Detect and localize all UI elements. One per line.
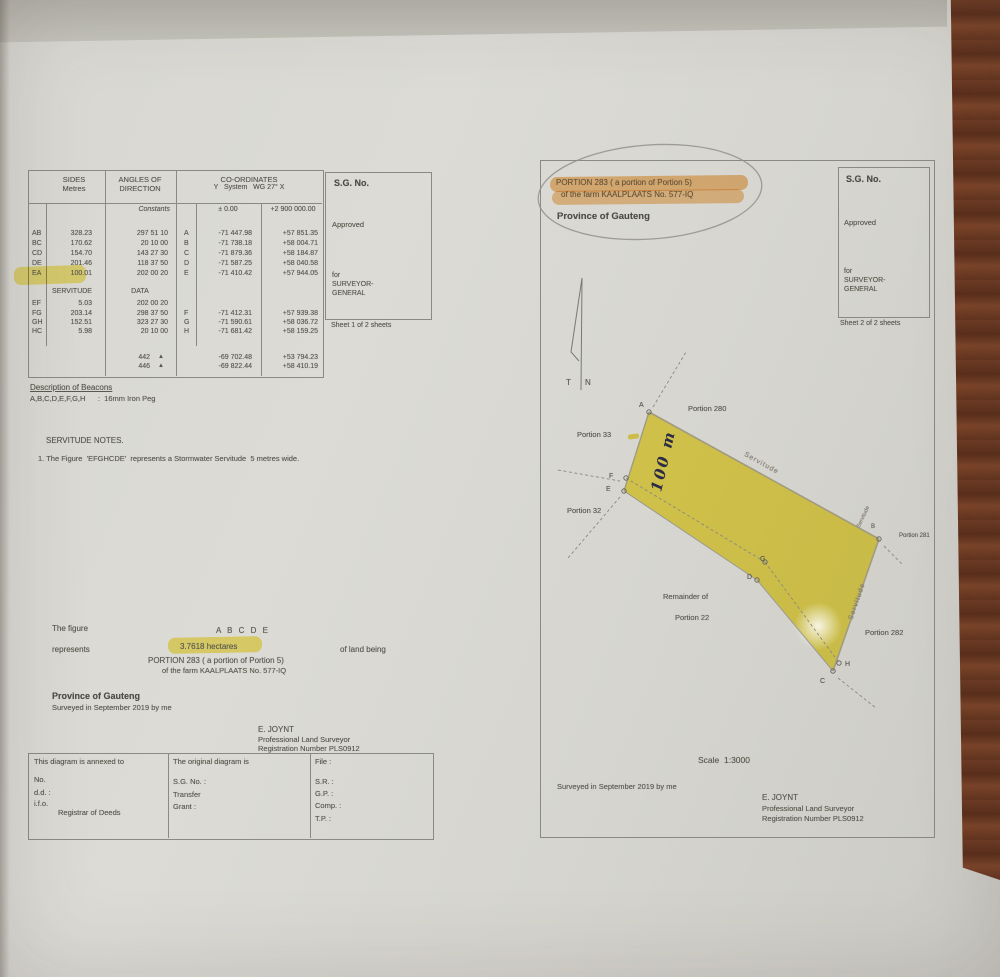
side-pair: FG [32, 310, 42, 317]
sheet-count: Sheet 2 of 2 sheets [840, 320, 900, 327]
constant-x: +2 900 000.00 [271, 206, 316, 213]
beacon-letter: B [184, 240, 189, 247]
sg-no-title: S.G. No. [846, 174, 881, 184]
surveyor-general-label-2: GENERAL [844, 286, 877, 293]
table-rule [310, 753, 311, 838]
table-header-rule [28, 203, 322, 204]
photographed-survey-document: SIDES Metres ANGLES OF DIRECTION CO-ORDI… [0, 0, 1000, 977]
beacons-description: A,B,C,D,E,F,G,H : 16mm Iron Peg [30, 394, 155, 403]
background-surface [0, 0, 947, 46]
coord-y: -69 702.48 [219, 354, 252, 361]
coord-y: -69 822.44 [219, 363, 252, 370]
direction-angle: 202 00 20 [137, 300, 168, 307]
direction-angle: 323 27 30 [137, 319, 168, 326]
label-remainder-1: Remainder of [663, 592, 708, 601]
portion-title: PORTION 283 ( a portion of Portion 5) [148, 656, 284, 665]
col-header-angles-2: DIRECTION [119, 184, 160, 193]
label-remainder-2: Portion 22 [675, 613, 709, 622]
beacon-label-a: A [639, 402, 644, 409]
servitude-note-1: 1. The Figure 'EFGHCDE' represents a Sto… [38, 454, 299, 463]
coord-x: +58 159.25 [283, 328, 318, 335]
deeds-col1-title: This diagram is annexed to [34, 757, 124, 766]
deeds-col1-line: i.f.o. [34, 799, 48, 808]
coord-y: -71 587.25 [219, 260, 252, 267]
beacon-label-c: C [820, 678, 825, 685]
direction-angle: 297 51 10 [137, 230, 168, 237]
servitude-notes-heading: SERVITUDE NOTES. [46, 436, 124, 445]
table-rule [105, 170, 106, 376]
approved-label: Approved [332, 220, 364, 229]
side-pair: CD [32, 250, 42, 257]
table-rule [196, 203, 197, 346]
coord-x: +58 184.87 [283, 250, 318, 257]
surveyor-title: Professional Land Surveyor [258, 735, 350, 744]
coord-y: -71 879.36 [219, 250, 252, 257]
side-pair: EA [32, 270, 41, 277]
direction-angle: 20 10 00 [141, 240, 168, 247]
triangle-icon: ▲ [158, 354, 164, 360]
coord-x: +57 939.38 [283, 310, 318, 317]
coord-y: -71 410.42 [219, 270, 252, 277]
direction-angle: 298 37 50 [137, 310, 168, 317]
side-pair: GH [32, 319, 43, 326]
surveyor-registration: Registration Number PLS0912 [762, 814, 864, 823]
beacon-label-f: F [609, 473, 613, 480]
province-label: Province of Gauteng [52, 691, 140, 701]
beacon-label-e: E [606, 486, 611, 493]
sg-no-title: S.G. No. [334, 178, 369, 188]
for-label: for [332, 272, 340, 279]
side-pair: BC [32, 240, 42, 247]
side-length: 203.14 [71, 310, 92, 317]
side-pair: DE [32, 260, 42, 267]
direction-angle: 143 27 30 [137, 250, 168, 257]
surveyor-title: Professional Land Surveyor [762, 804, 854, 813]
deeds-col3-line: Comp. : [315, 801, 341, 810]
beacon-label-h: H [845, 661, 850, 668]
coord-y: -71 412.31 [219, 310, 252, 317]
coord-y: -71 447.98 [219, 230, 252, 237]
side-pair: HC [32, 328, 42, 335]
beacon-letter: C [184, 250, 189, 257]
coord-y: -71 681.42 [219, 328, 252, 335]
col-header-angles-1: ANGLES OF [119, 175, 162, 184]
deeds-col3-line: G.P. : [315, 789, 333, 798]
paper-edge-shadow [0, 0, 10, 977]
sheet-count: Sheet 1 of 2 sheets [331, 322, 391, 329]
surveyor-general-label-1: SURVEYOR- [332, 281, 374, 288]
coord-x: +58 036.72 [283, 319, 318, 326]
deeds-col2-line: Transfer [173, 790, 201, 799]
coord-x: +58 004.71 [283, 240, 318, 247]
coord-x: +58 040.58 [283, 260, 318, 267]
beacon-letter: A [184, 230, 189, 237]
direction-angle: 118 37 50 [137, 260, 168, 267]
province-label: Province of Gauteng [557, 211, 650, 222]
surveyed-line: Surveyed in September 2019 by me [557, 782, 677, 791]
coord-y: -71 738.18 [219, 240, 252, 247]
label-portion-280: Portion 280 [688, 404, 726, 413]
surveyor-general-label-1: SURVEYOR- [844, 277, 886, 284]
ref-beacon-number: 446 [138, 363, 150, 370]
triangle-icon: ▲ [158, 363, 164, 369]
beacon-letter: F [184, 310, 188, 317]
surveyor-name: E. JOYNT [762, 793, 798, 802]
side-pair: EF [32, 300, 41, 307]
coord-x: +58 410.19 [283, 363, 318, 370]
direction-angle: 202 00 20 [137, 270, 168, 277]
coord-x: +57 851.35 [283, 230, 318, 237]
side-length: 328.23 [71, 230, 92, 237]
represents-label: represents [52, 645, 90, 654]
side-length: 201.46 [71, 260, 92, 267]
deeds-col1-line: No. [34, 775, 46, 784]
surveyor-name: E. JOYNT [258, 725, 294, 734]
direction-angle: 20 10 00 [141, 328, 168, 335]
deeds-col3-title: File : [315, 757, 331, 766]
label-portion-282: Portion 282 [865, 628, 903, 637]
coord-x: +53 794.23 [283, 354, 318, 361]
ref-beacon-number: 442 [138, 354, 150, 361]
table-rule [261, 203, 262, 376]
constant-y: ± 0.00 [218, 206, 237, 213]
label-portion-32: Portion 32 [567, 506, 601, 515]
beacons-heading: Description of Beacons [30, 383, 112, 392]
farm-title: of the farm KAALPLAATS No. 577-IQ [162, 666, 286, 675]
of-land-being: of land being [340, 645, 386, 654]
sg-number-box [838, 167, 930, 318]
beacon-letter: G [184, 319, 189, 326]
deeds-col2-title: The original diagram is [173, 757, 249, 766]
approved-label: Approved [844, 218, 876, 227]
side-length: 5.03 [78, 300, 92, 307]
wood-table-edge [940, 0, 1000, 880]
beacon-letter: D [184, 260, 189, 267]
area-value: 3.7618 hectares [180, 642, 237, 651]
deeds-col2-line: S.G. No. : [173, 777, 206, 786]
scale-label: Scale 1:3000 [698, 755, 750, 765]
table-rule [176, 170, 177, 376]
deeds-col3-line: T.P. : [315, 814, 331, 823]
coord-y: -71 590.61 [219, 319, 252, 326]
col-header-coords-2: Y System WG 27° X [214, 184, 285, 191]
registrar-of-deeds: Registrar of Deeds [58, 808, 121, 817]
data-label: DATA [131, 288, 149, 295]
deeds-col2-line: Grant : [173, 802, 196, 811]
surveyor-registration: Registration Number PLS0912 [258, 744, 360, 753]
coord-x: +57 944.05 [283, 270, 318, 277]
side-length: 152.51 [71, 319, 92, 326]
side-length: 5.98 [78, 328, 92, 335]
for-label: for [844, 268, 852, 275]
side-length: 100.01 [71, 270, 92, 277]
deeds-col3-line: S.R. : [315, 777, 334, 786]
the-figure-label: The figure [52, 624, 88, 633]
beacon-letter: H [184, 328, 189, 335]
side-length: 154.70 [71, 250, 92, 257]
beacon-label-d: D [747, 574, 752, 581]
sg-number-box [325, 172, 432, 320]
servitude-label: SERVITUDE [52, 288, 92, 295]
label-portion-33: Portion 33 [577, 430, 611, 439]
deeds-col1-line: d.d. : [34, 788, 51, 797]
deeds-table-frame [28, 753, 434, 840]
side-length: 170.62 [71, 240, 92, 247]
label-portion-281: Portion 281 [899, 533, 930, 539]
side-pair: AB [32, 230, 41, 237]
north-label-n: N [585, 378, 591, 387]
col-header-coords-1: CO-ORDINATES [221, 175, 278, 184]
north-label-t: T [566, 378, 571, 387]
table-rule [168, 753, 169, 838]
diagram-portion-title: PORTION 283 ( a portion of Portion 5) [556, 178, 692, 187]
col-header-metres: Metres [63, 184, 86, 193]
surveyed-line: Surveyed in September 2019 by me [52, 703, 172, 712]
beacon-label-b: B [871, 524, 875, 530]
diagram-farm-title: of the farm KAALPLAATS No. 577-IQ [561, 190, 693, 199]
beacon-label-g: G [760, 556, 765, 563]
constants-label: Constants [138, 206, 170, 213]
beacon-letter: E [184, 270, 189, 277]
figure-letters: A B C D E [216, 626, 270, 635]
col-header-sides: SIDES [63, 175, 86, 184]
surveyor-general-label-2: GENERAL [332, 290, 365, 297]
